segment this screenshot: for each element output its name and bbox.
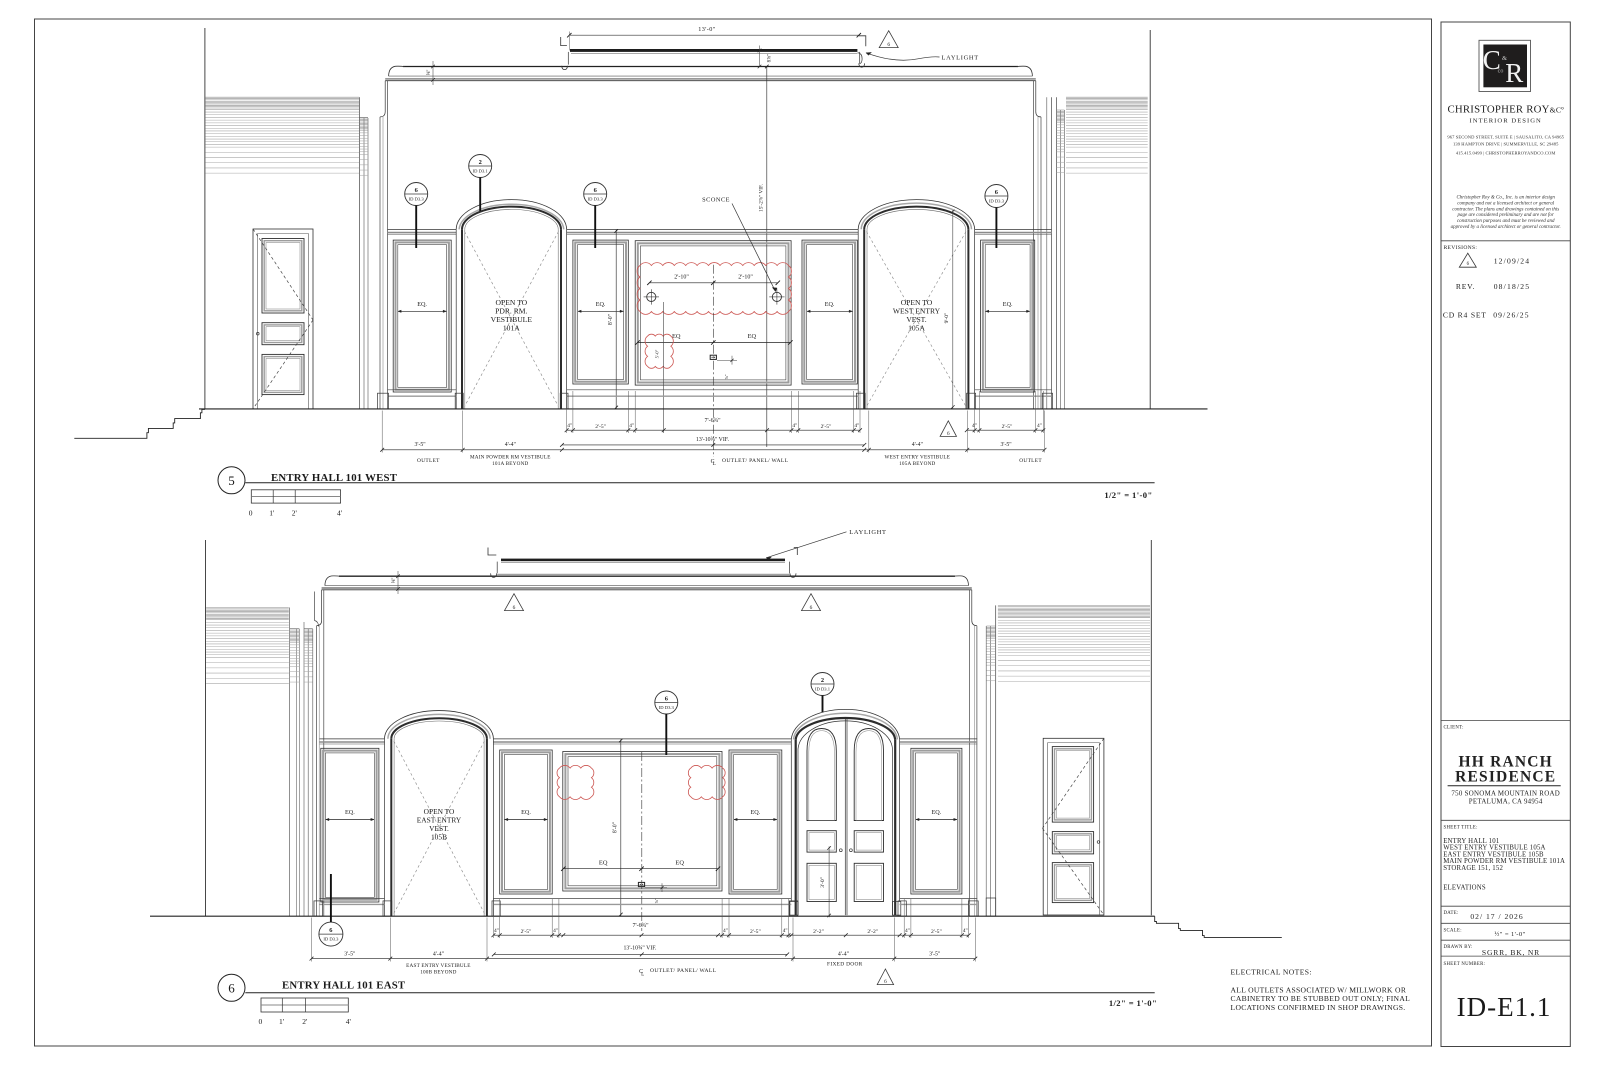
svg-text:2': 2' xyxy=(302,1017,308,1026)
svg-text:7'-6¾": 7'-6¾" xyxy=(632,922,649,929)
svg-text:2'-2": 2'-2" xyxy=(867,929,878,935)
svg-text:750 SONOMA MOUNTAIN ROAD: 750 SONOMA MOUNTAIN ROAD xyxy=(1451,790,1560,797)
svg-text:ID D3.3: ID D3.3 xyxy=(588,196,604,201)
svg-text:½" = 1'-0": ½" = 1'-0" xyxy=(1494,931,1525,938)
svg-text:CD R4 SET: CD R4 SET xyxy=(1443,311,1487,320)
svg-text:DRAWN BY:: DRAWN BY: xyxy=(1444,945,1473,950)
svg-text:Christopher Roy & Co., Inc. is: Christopher Roy & Co., Inc. is an interi… xyxy=(1456,196,1555,201)
svg-text:9'-0": 9'-0" xyxy=(944,313,950,324)
svg-text:EQ.: EQ. xyxy=(751,809,761,816)
svg-text:ID D3.3: ID D3.3 xyxy=(409,196,425,201)
svg-text:0: 0 xyxy=(259,1017,263,1026)
svg-text:⅞": ⅞" xyxy=(654,898,659,903)
svg-text:PETALUMA, CA 94954: PETALUMA, CA 94954 xyxy=(1469,798,1543,805)
svg-text:approved by a licensed archite: approved by a licensed architect or gene… xyxy=(1451,225,1561,230)
svg-text:2'-10": 2'-10" xyxy=(738,274,753,280)
svg-text:105A BEYOND: 105A BEYOND xyxy=(899,461,935,467)
svg-text:4": 4" xyxy=(723,928,728,934)
svg-text:1/2" = 1'-0": 1/2" = 1'-0" xyxy=(1109,998,1157,1008)
svg-text:OUTLET: OUTLET xyxy=(417,458,440,464)
svg-text:0: 0 xyxy=(249,508,253,517)
svg-text:12/09/24: 12/09/24 xyxy=(1494,257,1531,266)
svg-text:4": 4" xyxy=(792,423,797,429)
svg-text:7'-6¾": 7'-6¾" xyxy=(704,417,721,424)
svg-text:4": 4" xyxy=(494,928,499,934)
svg-text:STORAGE 151, 152: STORAGE 151, 152 xyxy=(1443,865,1503,872)
svg-text:page are considered preliminar: page are considered preliminary and are … xyxy=(1457,213,1554,218)
svg-text:SCALE:: SCALE: xyxy=(1444,928,1462,933)
svg-text:1/2" = 1'-0": 1/2" = 1'-0" xyxy=(1104,490,1152,500)
svg-text:SHEET TITLE:: SHEET TITLE: xyxy=(1444,826,1478,831)
svg-text:6: 6 xyxy=(947,431,950,437)
svg-text:ENTRY HALL 101 EAST: ENTRY HALL 101 EAST xyxy=(282,980,406,992)
svg-text:FIXED DOOR: FIXED DOOR xyxy=(827,962,863,968)
svg-text:2'-10": 2'-10" xyxy=(674,274,689,280)
svg-text:OUTLET/ PANEL/ WALL: OUTLET/ PANEL/ WALL xyxy=(722,458,789,464)
svg-text:5: 5 xyxy=(228,473,235,488)
svg-text:2'-5": 2'-5" xyxy=(521,929,532,935)
svg-text:6: 6 xyxy=(884,979,887,985)
svg-text:company and not a licensed arc: company and not a licensed architect or … xyxy=(1457,201,1554,206)
svg-text:CLIENT:: CLIENT: xyxy=(1444,726,1464,731)
svg-text:13'-0": 13'-0" xyxy=(698,26,715,33)
svg-text:4": 4" xyxy=(783,928,788,934)
svg-text:3'-5": 3'-5" xyxy=(929,952,940,958)
svg-text:ID D3.3: ID D3.3 xyxy=(323,937,339,942)
svg-text:ENTRY HALL 101 WEST: ENTRY HALL 101 WEST xyxy=(271,472,398,484)
svg-text:⅝": ⅝" xyxy=(392,578,397,584)
svg-text:2: 2 xyxy=(479,159,482,166)
svg-text:EQ.: EQ. xyxy=(825,301,835,308)
svg-text:2'-2": 2'-2" xyxy=(813,929,824,935)
svg-text:EAST ENTRY VESTIBULE: EAST ENTRY VESTIBULE xyxy=(406,963,470,969)
svg-text:ELECTRICAL NOTES:: ELECTRICAL NOTES: xyxy=(1231,967,1312,976)
svg-text:4'-4": 4'-4" xyxy=(505,442,516,448)
svg-text:4'-4": 4'-4" xyxy=(433,952,444,958)
svg-text:R: R xyxy=(1505,58,1523,88)
svg-text:2'-5": 2'-5" xyxy=(750,929,761,935)
svg-text:6: 6 xyxy=(513,605,516,611)
svg-text:4": 4" xyxy=(553,928,558,934)
svg-text:8⅞": 8⅞" xyxy=(767,54,773,63)
svg-text:4": 4" xyxy=(629,423,634,429)
svg-text:EQ: EQ xyxy=(599,859,608,866)
svg-text:2: 2 xyxy=(821,677,824,684)
svg-text:2'-5": 2'-5" xyxy=(821,424,832,430)
svg-text:6: 6 xyxy=(810,605,813,611)
svg-text:CHRISTOPHER ROY&Cº: CHRISTOPHER ROY&Cº xyxy=(1448,104,1565,116)
svg-text:13'-10¾" VIF.: 13'-10¾" VIF. xyxy=(624,944,658,951)
svg-text:ID D3.1: ID D3.1 xyxy=(473,168,489,173)
svg-text:⅞": ⅞" xyxy=(724,374,729,379)
svg-text:EQ.: EQ. xyxy=(932,809,942,816)
svg-text:OUTLET/ PANEL/ WALL: OUTLET/ PANEL/ WALL xyxy=(650,968,717,974)
svg-text:LOCATIONS CONFIRMED IN SHOP DR: LOCATIONS CONFIRMED IN SHOP DRAWINGS. xyxy=(1231,1003,1406,1012)
svg-text:2'-5": 2'-5" xyxy=(1002,424,1013,430)
svg-text:4": 4" xyxy=(567,423,572,429)
svg-text:101A: 101A xyxy=(503,324,520,333)
svg-text:4": 4" xyxy=(905,928,910,934)
svg-text:EQ.: EQ. xyxy=(521,809,531,816)
svg-text:1': 1' xyxy=(269,508,275,517)
svg-text:3'-5": 3'-5" xyxy=(415,442,426,448)
svg-text:5'-0": 5'-0" xyxy=(655,349,660,358)
svg-text:RESIDENCE: RESIDENCE xyxy=(1455,768,1556,785)
svg-text:WEST ENTRY VESTIBULE: WEST ENTRY VESTIBULE xyxy=(885,455,951,461)
svg-text:DATE:: DATE: xyxy=(1444,911,1459,916)
svg-text:4": 4" xyxy=(854,423,859,429)
svg-text:EQ.: EQ. xyxy=(417,301,427,308)
svg-text:101A BEYOND: 101A BEYOND xyxy=(492,461,528,467)
svg-text:ID D3.3: ID D3.3 xyxy=(989,198,1005,203)
svg-text:6: 6 xyxy=(228,981,235,996)
svg-text:ID-E1.1: ID-E1.1 xyxy=(1457,992,1552,1022)
svg-text:6: 6 xyxy=(887,42,890,48)
svg-text:REV.: REV. xyxy=(1456,282,1475,291)
svg-text:L: L xyxy=(713,461,716,467)
svg-text:02/ 17 / 2026: 02/ 17 / 2026 xyxy=(1470,912,1523,921)
svg-text:2'-5": 2'-5" xyxy=(931,929,942,935)
svg-text:08/18/25: 08/18/25 xyxy=(1494,282,1531,291)
svg-text:4'-4": 4'-4" xyxy=(912,442,923,448)
svg-text:ID D3.1: ID D3.1 xyxy=(815,686,831,691)
svg-text:EQ: EQ xyxy=(748,333,757,340)
svg-text:EQ.: EQ. xyxy=(345,809,355,816)
svg-text:SCONCE: SCONCE xyxy=(702,196,730,203)
svg-text:EQ: EQ xyxy=(675,859,684,866)
svg-text:construction purposes and must: construction purposes and must be review… xyxy=(1457,219,1555,224)
svg-text:REVISIONS:: REVISIONS: xyxy=(1444,245,1478,251)
svg-text:3'-5": 3'-5" xyxy=(344,952,355,958)
svg-text:2': 2' xyxy=(292,508,298,517)
svg-text:4": 4" xyxy=(963,928,968,934)
svg-text:3'-5": 3'-5" xyxy=(1001,442,1012,448)
svg-text:EQ.: EQ. xyxy=(1003,301,1013,308)
svg-text:4': 4' xyxy=(346,1017,352,1026)
svg-text:4'-4": 4'-4" xyxy=(838,952,849,958)
svg-text:L: L xyxy=(641,971,644,977)
svg-text:100B BEYOND: 100B BEYOND xyxy=(420,969,456,975)
svg-text:8'-0": 8'-0" xyxy=(608,314,614,325)
svg-text:4': 4' xyxy=(337,508,343,517)
svg-text:SGRR, BK, NR: SGRR, BK, NR xyxy=(1482,948,1540,957)
svg-text:09/26/25: 09/26/25 xyxy=(1493,311,1530,320)
svg-text:ELEVATIONS: ELEVATIONS xyxy=(1443,884,1486,891)
svg-text:EQ.: EQ. xyxy=(596,301,606,308)
svg-text:co: co xyxy=(1498,69,1504,75)
svg-text:MAIN POWDER RM VESTIBULE: MAIN POWDER RM VESTIBULE xyxy=(470,455,551,461)
svg-text:LAYLIGHT: LAYLIGHT xyxy=(942,55,979,62)
svg-text:13'-10¾" VIF.: 13'-10¾" VIF. xyxy=(696,436,730,443)
svg-text:INTERIOR DESIGN: INTERIOR DESIGN xyxy=(1470,118,1542,125)
svg-text:415.415.0499 | CHRISTOPHERRO: 415.415.0499 | CHRISTOPHERROYANDCO.COM xyxy=(1456,151,1556,156)
svg-text:2'-5": 2'-5" xyxy=(595,424,606,430)
svg-text:105B: 105B xyxy=(431,833,447,842)
svg-text:⅝": ⅝" xyxy=(427,70,432,76)
svg-text:4": 4" xyxy=(1037,423,1042,429)
svg-text:ID D3.3: ID D3.3 xyxy=(659,705,675,710)
svg-text:OUTLET: OUTLET xyxy=(1019,458,1042,464)
svg-text:3'-0": 3'-0" xyxy=(820,877,826,888)
svg-text:8'-0": 8'-0" xyxy=(612,822,618,833)
svg-text:LAYLIGHT: LAYLIGHT xyxy=(849,529,886,536)
svg-text:SHEET NUMBER:: SHEET NUMBER: xyxy=(1444,962,1486,967)
svg-text:15'-2⅞" VIF.: 15'-2⅞" VIF. xyxy=(759,184,765,212)
svg-text:1': 1' xyxy=(279,1017,285,1026)
svg-text:contractor. The plans and draw: contractor. The plans and drawings conta… xyxy=(1452,207,1559,212)
svg-text:105A: 105A xyxy=(908,324,925,333)
